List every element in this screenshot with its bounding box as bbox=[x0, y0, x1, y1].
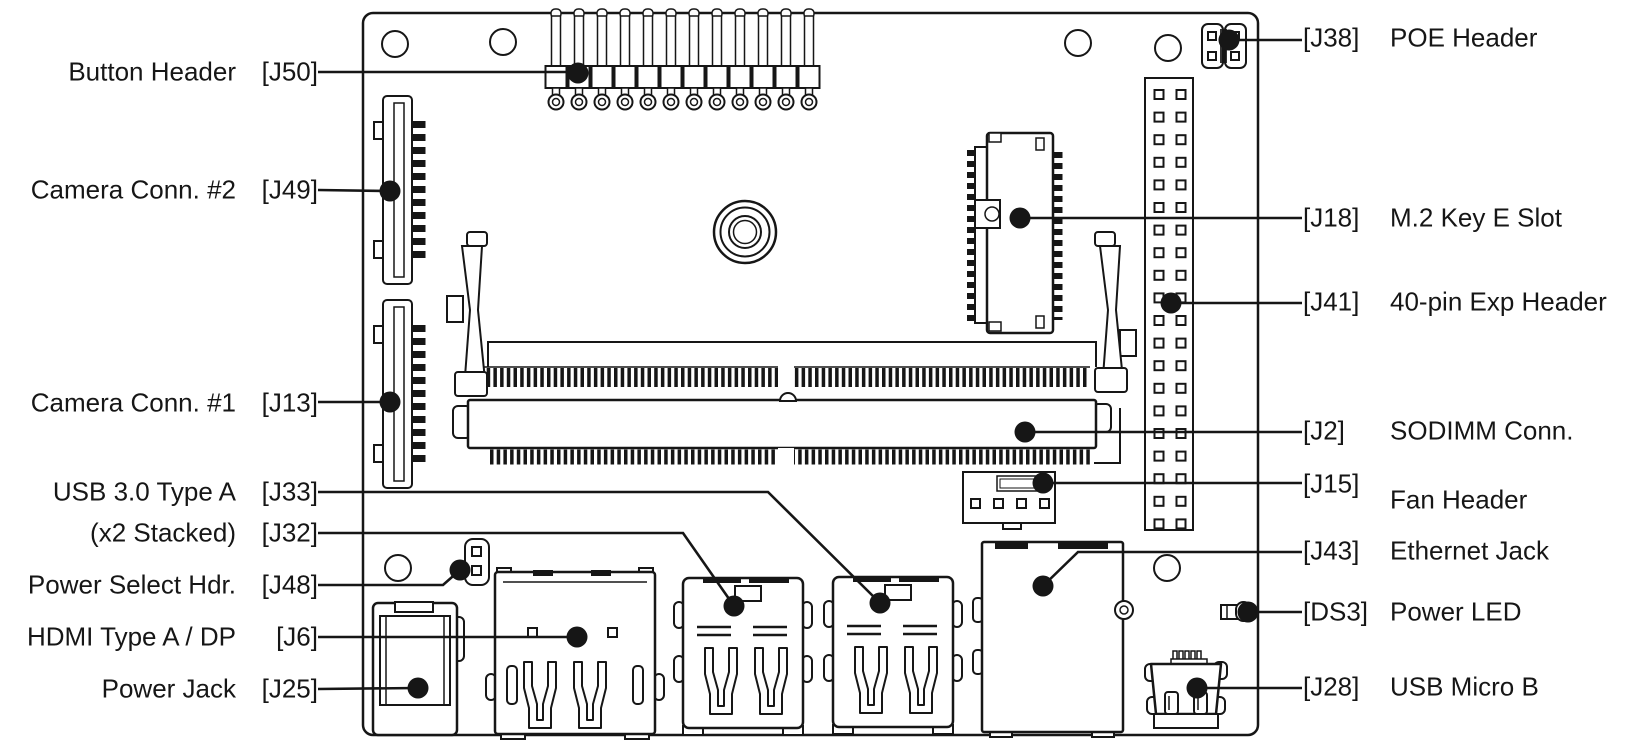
callout-name: M.2 Key E Slot bbox=[1390, 204, 1562, 231]
callout-name: Camera Conn. #1 bbox=[31, 389, 236, 416]
callout-name: POE Header bbox=[1390, 24, 1537, 51]
callout-ref: [J43] bbox=[1303, 537, 1390, 564]
callout-label-usb3-stacked: (x2 Stacked) [J32] bbox=[90, 519, 318, 546]
callout-name: Ethernet Jack bbox=[1390, 537, 1549, 564]
ethernet-jack bbox=[973, 542, 1133, 737]
callout-label-m2-key-e: [J18] M.2 Key E Slot bbox=[1303, 204, 1562, 231]
callout-label-hdmi-dp: HDMI Type A / DP [J6] bbox=[27, 623, 318, 650]
callout-ref: [J13] bbox=[252, 389, 318, 416]
callout-ref: [J38] bbox=[1303, 24, 1390, 51]
callout-name: 40-pin Exp Header bbox=[1390, 288, 1607, 315]
callout-ref: [J2] bbox=[1303, 417, 1390, 444]
hdmi-connector bbox=[486, 568, 664, 739]
callout-label-camera-conn-1: Camera Conn. #1 [J13] bbox=[31, 389, 318, 416]
callout-ref: [J49] bbox=[252, 176, 318, 203]
usb-stack-2 bbox=[824, 576, 962, 734]
callout-name: Power Jack bbox=[102, 675, 236, 702]
callout-label-power-jack: Power Jack [J25] bbox=[102, 675, 318, 702]
callout-ref: [J50] bbox=[252, 58, 318, 85]
callout-ref: [J41] bbox=[1303, 288, 1390, 315]
callout-label-poe-header: [J38] POE Header bbox=[1303, 24, 1537, 51]
callout-label-sodimm: [J2] SODIMM Conn. bbox=[1303, 417, 1574, 444]
callout-ref: [J15] bbox=[1303, 470, 1390, 497]
callout-label-usb-micro-b: [J28] USB Micro B bbox=[1303, 673, 1539, 700]
callout-label-power-led: [DS3] Power LED bbox=[1303, 598, 1522, 625]
power-select-header bbox=[465, 539, 489, 585]
callout-ref: [J48] bbox=[252, 571, 318, 598]
callout-ref: [J32] bbox=[252, 519, 318, 546]
callout-ref: [J25] bbox=[252, 675, 318, 702]
callout-name: Button Header bbox=[68, 58, 236, 85]
board-callout-diagram: Button Header [J50] Camera Conn. #2 [J49… bbox=[0, 0, 1631, 745]
callout-label-button-header: Button Header [J50] bbox=[68, 58, 318, 85]
callout-name: USB 3.0 Type A bbox=[53, 478, 236, 505]
callout-label-fan-header: [J15] Fan Header bbox=[1303, 470, 1527, 497]
callout-label-power-select-hdr: Power Select Hdr. [J48] bbox=[28, 571, 318, 598]
callout-name: Camera Conn. #2 bbox=[31, 176, 236, 203]
callout-name: USB Micro B bbox=[1390, 673, 1539, 700]
callout-name: Fan Header bbox=[1390, 486, 1527, 513]
callout-name: HDMI Type A / DP bbox=[27, 623, 236, 650]
callout-ref: [J18] bbox=[1303, 204, 1390, 231]
callout-ref: [J33] bbox=[252, 478, 318, 505]
callout-name: Power LED bbox=[1390, 598, 1522, 625]
m2-key-e-slot bbox=[973, 133, 1058, 333]
callout-label-usb3-type-a: USB 3.0 Type A [J33] bbox=[53, 478, 318, 505]
callout-ref: [J28] bbox=[1303, 673, 1390, 700]
callout-name: (x2 Stacked) bbox=[90, 519, 236, 546]
callout-label-camera-conn-2: Camera Conn. #2 [J49] bbox=[31, 176, 318, 203]
callout-label-ethernet-jack: [J43] Ethernet Jack bbox=[1303, 537, 1549, 564]
callout-ref: [DS3] bbox=[1303, 598, 1390, 625]
callout-ref: [J6] bbox=[252, 623, 318, 650]
callout-name: SODIMM Conn. bbox=[1390, 417, 1574, 444]
callout-name: Power Select Hdr. bbox=[28, 571, 236, 598]
callout-label-40pin-exp-header: [J41] 40-pin Exp Header bbox=[1303, 288, 1607, 315]
power-jack bbox=[373, 602, 464, 735]
